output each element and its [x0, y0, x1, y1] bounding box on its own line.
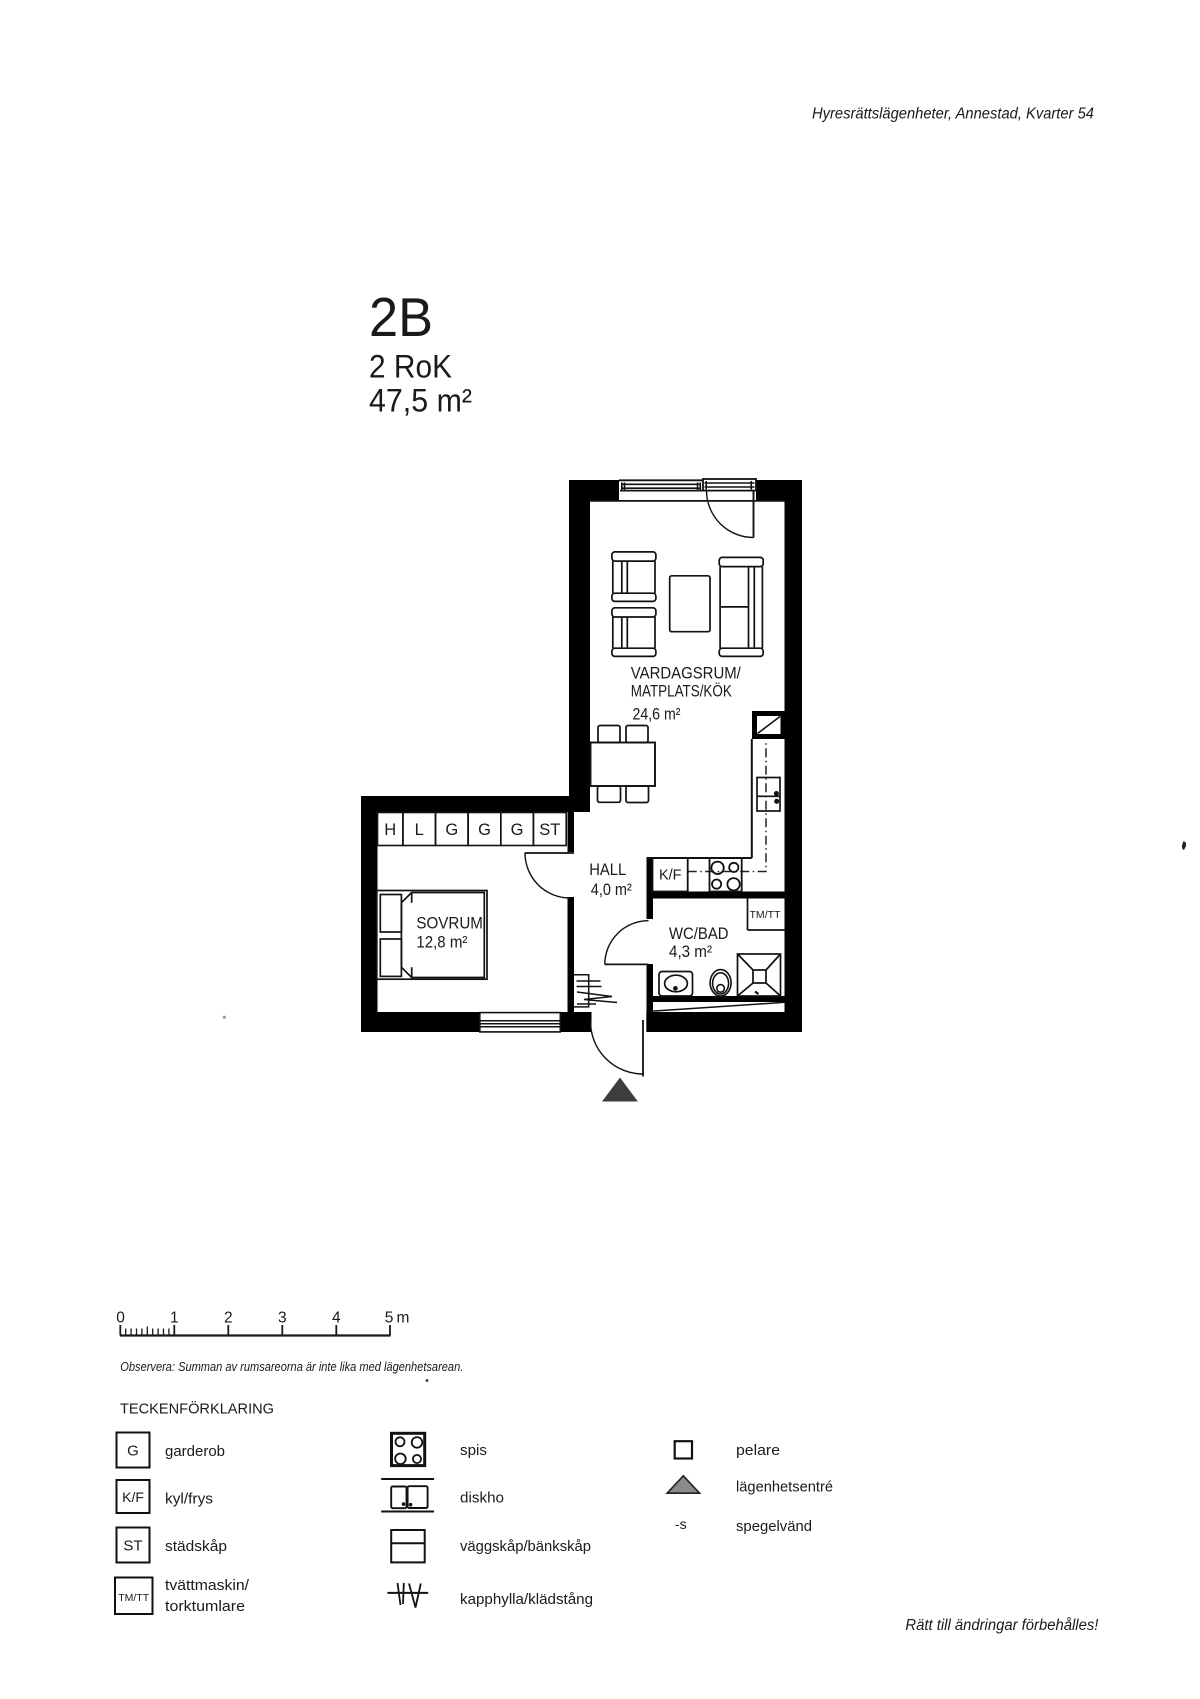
svg-text:L: L: [415, 821, 424, 839]
svg-text:4,3 m²: 4,3 m²: [669, 943, 712, 961]
svg-text:kapphylla/klädstång: kapphylla/klädstång: [460, 1591, 593, 1608]
svg-text:HALL: HALL: [589, 861, 626, 879]
svg-text:spis: spis: [460, 1442, 487, 1459]
svg-text:G: G: [127, 1443, 139, 1460]
svg-text:Rätt till ändringar förbehålle: Rätt till ändringar förbehålles!: [905, 1617, 1099, 1634]
svg-text:1: 1: [170, 1310, 179, 1327]
svg-text:Hyresrättslägenheter, Annestad: Hyresrättslägenheter, Annestad, Kvarter …: [812, 106, 1094, 123]
svg-text:K/F: K/F: [659, 868, 682, 884]
svg-text:TM/TT: TM/TT: [118, 1592, 149, 1604]
svg-text:m: m: [397, 1310, 410, 1327]
svg-text:2 RoK: 2 RoK: [369, 349, 452, 385]
svg-text:2B: 2B: [369, 286, 433, 348]
svg-text:väggskåp/bänkskåp: väggskåp/bänkskåp: [460, 1538, 591, 1555]
svg-text:G: G: [478, 821, 491, 839]
svg-text:ST: ST: [123, 1538, 142, 1555]
svg-text:2: 2: [224, 1310, 233, 1327]
svg-text:4,0 m²: 4,0 m²: [591, 881, 632, 899]
svg-text:spegelvänd: spegelvänd: [736, 1518, 812, 1535]
svg-text:torktumlare: torktumlare: [165, 1598, 245, 1615]
svg-text:-s: -s: [675, 1516, 687, 1532]
svg-text:städskåp: städskåp: [165, 1538, 227, 1555]
svg-text:TM/TT: TM/TT: [750, 909, 782, 921]
svg-text:MATPLATS/KÖK: MATPLATS/KÖK: [631, 683, 732, 701]
svg-text:Observera: Summan av rumsareor: Observera: Summan av rumsareorna är inte…: [120, 1359, 463, 1374]
svg-text:0: 0: [116, 1310, 125, 1327]
svg-text:kyl/frys: kyl/frys: [165, 1491, 213, 1508]
svg-text:ST: ST: [539, 821, 560, 839]
svg-text:garderob: garderob: [165, 1443, 225, 1460]
svg-text:SOVRUM: SOVRUM: [416, 915, 483, 933]
svg-text:4: 4: [332, 1310, 341, 1327]
svg-text:pelare: pelare: [736, 1442, 780, 1459]
svg-text:H: H: [384, 821, 396, 839]
svg-text:47,5 m²: 47,5 m²: [369, 383, 472, 419]
svg-text:24,6 m²: 24,6 m²: [633, 705, 681, 723]
svg-text:lägenhetsentré: lägenhetsentré: [736, 1479, 833, 1496]
svg-text:K/F: K/F: [122, 1489, 144, 1505]
svg-text:TECKENFÖRKLARING: TECKENFÖRKLARING: [120, 1400, 274, 1418]
svg-text:5: 5: [385, 1310, 394, 1327]
svg-text:G: G: [511, 821, 524, 839]
svg-text:WC/BAD: WC/BAD: [669, 925, 729, 943]
svg-text:3: 3: [278, 1310, 287, 1327]
svg-text:tvättmaskin/: tvättmaskin/: [165, 1577, 250, 1594]
svg-text:12,8 m²: 12,8 m²: [416, 934, 467, 952]
svg-text:VARDAGSRUM/: VARDAGSRUM/: [631, 665, 741, 683]
svg-text:G: G: [445, 821, 458, 839]
svg-text:diskho: diskho: [460, 1490, 504, 1507]
